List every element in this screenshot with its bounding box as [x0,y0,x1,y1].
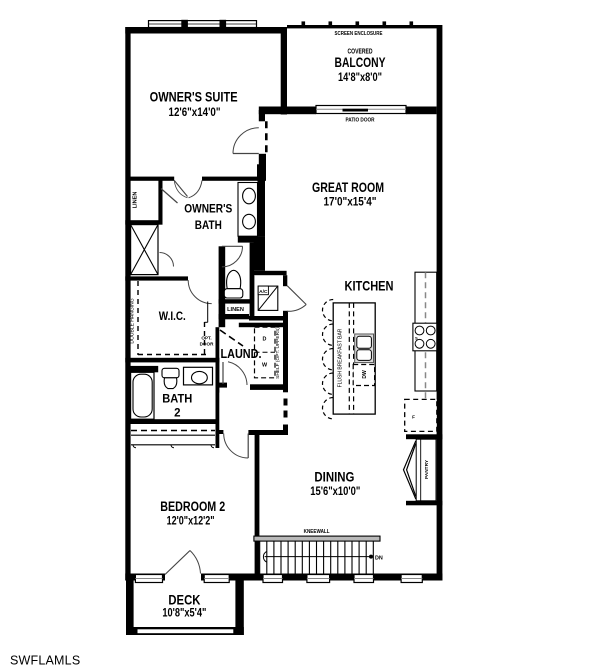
svg-text:BATH: BATH [195,218,222,232]
svg-text:A/C: A/C [259,289,268,295]
svg-text:KITCHEN: KITCHEN [345,279,394,294]
svg-text:LINEN: LINEN [227,307,244,313]
svg-text:SHELF (OPT. UPPERS): SHELF (OPT. UPPERS) [275,327,281,379]
svg-text:12'0"x12'2": 12'0"x12'2" [167,514,215,528]
svg-text:DOUBLE HANGING: DOUBLE HANGING [129,298,135,343]
svg-text:FLUSH BREAKFAST BAR: FLUSH BREAKFAST BAR [338,328,344,387]
svg-text:15'6"x10'0": 15'6"x10'0" [310,484,360,498]
svg-text:PATIO DOOR: PATIO DOOR [346,118,375,124]
svg-text:KNEEWALL: KNEEWALL [304,529,330,535]
svg-text:BALCONY: BALCONY [335,54,386,70]
svg-text:DW: DW [362,370,368,379]
svg-text:LINEN: LINEN [133,192,139,209]
svg-text:GREAT ROOM: GREAT ROOM [312,179,384,195]
svg-text:BEDROOM 2: BEDROOM 2 [160,499,225,514]
svg-text:W.I.C.: W.I.C. [159,311,186,323]
svg-text:LAUND.: LAUND. [221,347,262,361]
svg-text:F: F [412,414,415,419]
svg-text:OPT.: OPT. [201,336,211,341]
svg-text:14'8"x8'0": 14'8"x8'0" [338,70,382,84]
svg-text:DOOR: DOOR [200,342,214,347]
svg-text:2: 2 [174,408,180,420]
svg-text:DINING: DINING [314,470,354,485]
svg-text:BATH: BATH [162,394,192,406]
svg-text:10'8"x5'4": 10'8"x5'4" [162,606,206,620]
svg-text:SWFLAMLS: SWFLAMLS [10,654,80,667]
svg-text:12'6"x14'0": 12'6"x14'0" [169,105,221,119]
svg-text:OWNER'S: OWNER'S [184,202,232,216]
svg-text:17'0"x15'4": 17'0"x15'4" [324,195,377,209]
svg-text:OWNER'S SUITE: OWNER'S SUITE [150,90,238,105]
svg-text:SCREEN ENCLOSURE: SCREEN ENCLOSURE [335,31,383,37]
svg-text:DN: DN [375,555,383,561]
svg-text:PANTRY: PANTRY [424,459,430,479]
svg-text:D: D [263,336,267,342]
svg-text:S: S [415,336,418,341]
